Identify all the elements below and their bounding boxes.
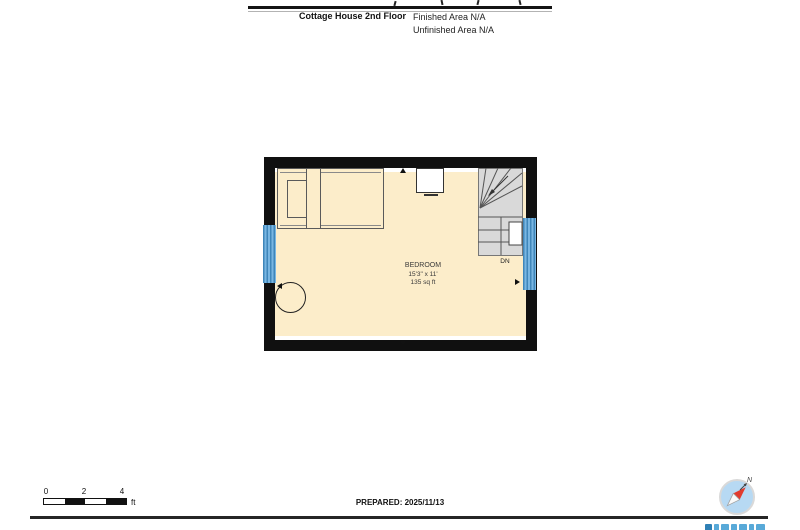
compass-icon [719,479,755,515]
bed-pillow [287,180,308,218]
room-label: BEDROOM 15'3" x 11' 135 sq ft [358,262,488,288]
dimension-arrow-down-icon [400,341,406,346]
nightstand-handle [424,194,438,196]
staircase [478,168,523,256]
header-rule-thick [248,6,552,9]
logo-glyph-top [714,524,719,530]
dimension-arrow-up-icon [400,168,406,173]
bed-blanket-fold [306,168,321,229]
prepared-date-label: PREPARED: 2025/11/13 [300,498,500,507]
scale-segment [85,499,106,504]
floor-plan: DN BEDROOM 15'3" x 11' 135 sq ft [264,157,537,351]
room-dimensions: 15'3" x 11' [358,271,488,280]
logo-glyph-top [731,524,737,530]
compass-north-label: N [747,477,752,484]
scale-tick-0: 0 [41,487,51,496]
scale-segment [65,499,86,504]
logo-glyph-top [705,524,712,530]
clipped-glyph [476,0,479,5]
finished-area-label: Finished Area N/A [413,11,494,24]
scale-tick-4: 4 [117,487,127,496]
stair-landing-box [509,222,522,245]
clipped-glyph [518,0,521,5]
page-title: Cottage House 2nd Floor [0,11,406,21]
scale-segment [106,499,127,504]
window-right [523,218,536,290]
partial-logo-mark [705,524,765,530]
scale-segment [44,499,65,504]
bed-footboard-line [280,225,381,226]
scale-bar [43,498,127,505]
logo-glyph-top [756,524,765,530]
room-name: BEDROOM [358,262,488,271]
window-left [263,225,276,283]
bed-headboard-line [280,172,381,173]
logo-glyph-top [721,524,729,530]
stairs-down-label: DN [491,258,519,265]
unfinished-area-label: Unfinished Area N/A [413,24,494,37]
clipped-glyph [441,0,444,5]
bed [277,168,384,229]
nightstand [416,168,444,193]
area-summary: Finished Area N/A Unfinished Area N/A [413,11,494,37]
logo-glyph-top [739,524,747,530]
dimension-arrow-right-icon [515,279,520,285]
scale-unit-label: ft [131,498,135,507]
room-area: 135 sq ft [358,279,488,288]
footer-rule [30,516,768,519]
floor-plan-page: Cottage House 2nd Floor Finished Area N/… [0,0,800,530]
dimension-arrow-left-icon [277,283,282,289]
logo-glyph-top [749,524,754,530]
scale-tick-2: 2 [79,487,89,496]
